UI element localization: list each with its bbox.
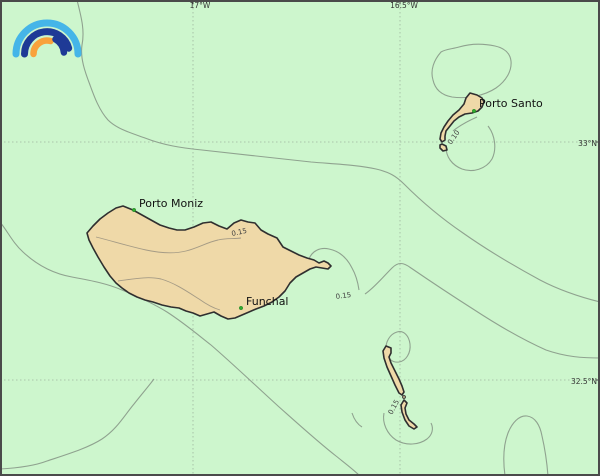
porto-santo-marker: [472, 109, 476, 113]
map-window: 0.15 0.10 0.15 0.15 Porto Moniz Funchal …: [0, 0, 600, 476]
axis-label-17w: 17°W: [190, 1, 211, 10]
porto-moniz-label: Porto Moniz: [139, 197, 203, 210]
funchal-label: Funchal: [246, 295, 289, 308]
porto-santo-label: Porto Santo: [479, 97, 543, 110]
desertas-islet: [403, 396, 406, 399]
porto-moniz-marker: [132, 208, 136, 212]
axis-label-33n: 33°N: [578, 139, 597, 148]
funchal-marker: [239, 306, 243, 310]
axis-label-16-5w: 16.5°W: [390, 1, 418, 10]
axis-label-32-5n: 32.5°N: [571, 377, 597, 386]
